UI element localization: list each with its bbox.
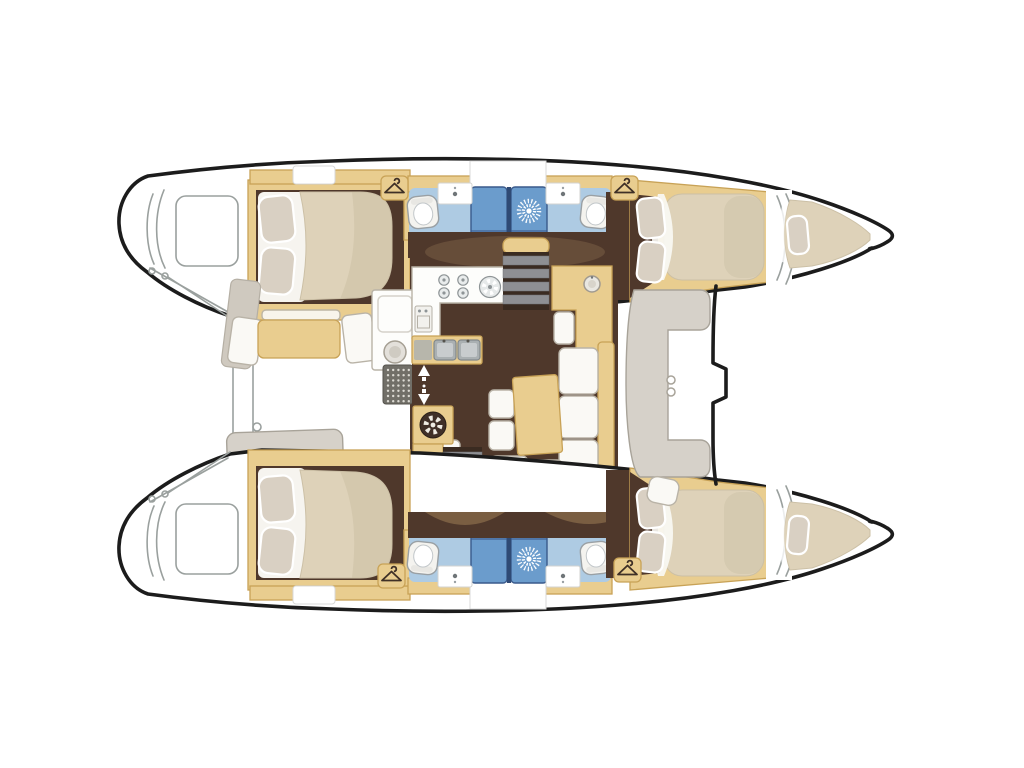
- wardrobe-hanger-icon: [378, 564, 405, 588]
- chart-table-seat: [554, 312, 574, 344]
- catamaran-floor-plan: [0, 0, 1024, 768]
- stool: [489, 421, 514, 450]
- deck-grate-icon: [383, 365, 413, 404]
- sofa-cushion: [559, 396, 598, 438]
- cup-holder: [667, 376, 675, 384]
- door-direction-arrows-icon: [412, 360, 436, 408]
- floor-plan-canvas: [0, 0, 1024, 768]
- cockpit-module: [372, 290, 418, 370]
- stool: [489, 390, 514, 418]
- cockpit-table: [258, 320, 340, 358]
- wardrobe-hanger-icon: [611, 176, 638, 200]
- stairs-upper-hull: [503, 238, 549, 310]
- wardrobe-hanger-icon: [614, 558, 641, 582]
- saloon-table: [512, 374, 562, 455]
- mast-step-notch: [713, 286, 726, 484]
- wardrobe-hanger-icon: [381, 176, 408, 200]
- sofa-cushion: [559, 348, 598, 394]
- twin-sinks-icon: [412, 336, 482, 364]
- chart-table-wet-bar: [552, 266, 612, 352]
- round-hob-icon: [480, 277, 501, 298]
- cleat: [253, 423, 261, 431]
- cup-holder: [667, 388, 675, 396]
- forward-cockpit: [626, 290, 710, 507]
- oven-icon: [415, 306, 432, 332]
